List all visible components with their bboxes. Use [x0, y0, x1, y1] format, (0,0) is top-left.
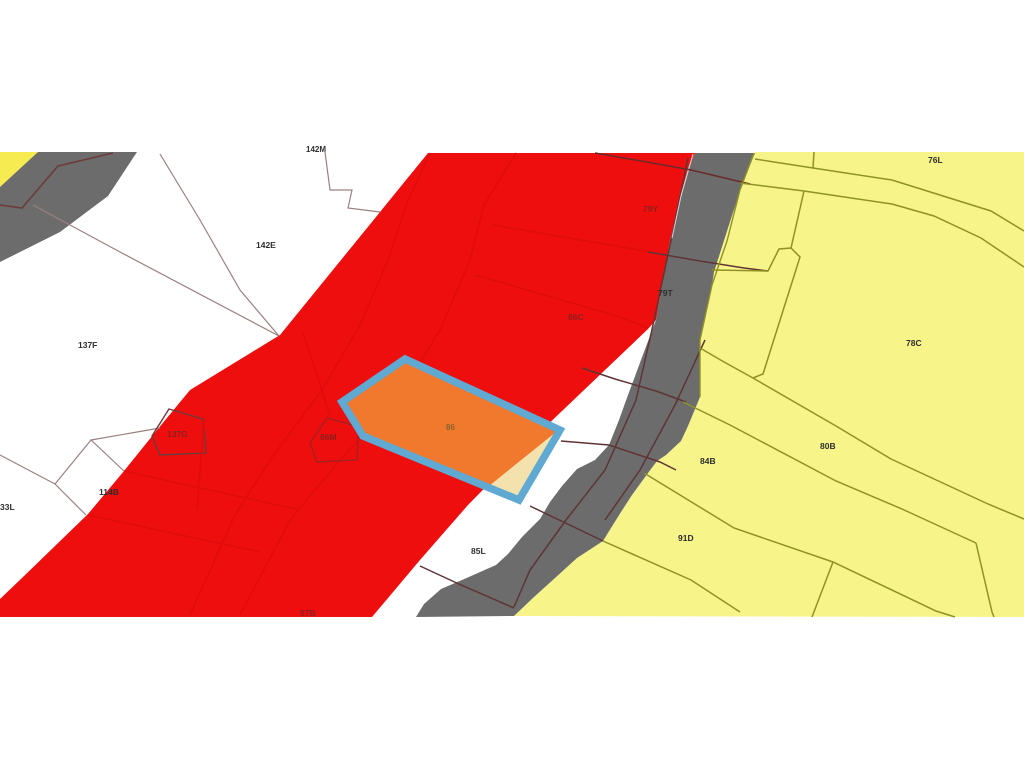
svg-text:91D: 91D [678, 533, 694, 543]
svg-text:86: 86 [446, 423, 455, 432]
svg-text:137F: 137F [78, 340, 97, 350]
svg-text:80B: 80B [820, 441, 836, 451]
svg-text:114B: 114B [99, 487, 119, 497]
svg-text:137G: 137G [167, 429, 188, 439]
svg-text:142E: 142E [256, 240, 276, 250]
svg-text:142M: 142M [306, 145, 326, 154]
svg-text:33L: 33L [0, 502, 15, 512]
svg-text:79Y: 79Y [643, 204, 658, 214]
svg-text:97B: 97B [300, 608, 316, 618]
svg-text:86M: 86M [320, 432, 337, 442]
svg-text:79T: 79T [658, 288, 673, 298]
svg-text:86C: 86C [568, 312, 584, 322]
svg-text:78C: 78C [906, 338, 922, 348]
svg-text:85L: 85L [471, 546, 486, 556]
svg-text:84B: 84B [700, 456, 716, 466]
svg-text:76L: 76L [928, 155, 943, 165]
